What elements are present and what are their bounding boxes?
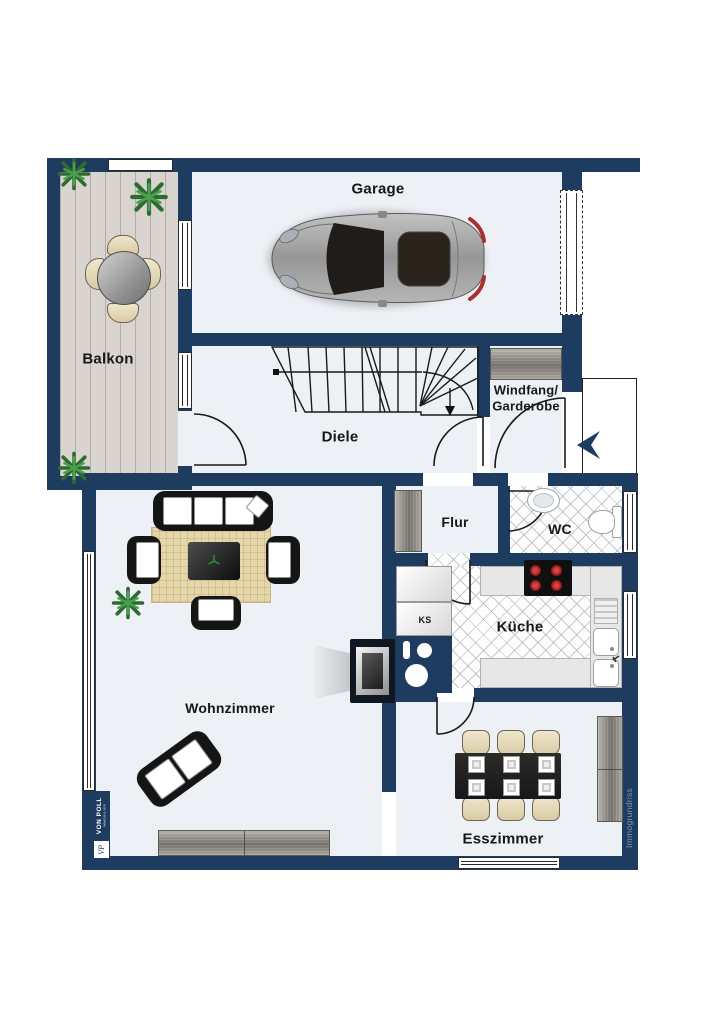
corridor-wardrobe <box>394 490 422 552</box>
kitchen-sink <box>593 659 619 687</box>
dining-door-arc <box>437 697 474 734</box>
watermark-text: Immogrundriss <box>624 796 634 848</box>
wc-sink <box>527 488 560 513</box>
sofa-3seat <box>153 491 273 531</box>
room-label-flur: Flur <box>441 514 468 530</box>
room-label-wc: WC <box>548 521 572 537</box>
room-label-garage: Garage <box>352 181 405 198</box>
room-label-windfang-2: Garderobe <box>492 399 560 414</box>
vestibule-door-arc <box>434 417 483 466</box>
livingroom-sideboard <box>158 830 330 856</box>
room-label-diele: Diele <box>322 429 359 446</box>
coffee-table <box>188 542 240 580</box>
room-label-kueche: Küche <box>497 619 544 636</box>
vonpoll-logo: VON POLL IMMOBILIEN VP <box>93 791 110 859</box>
room-label-windfang-1: Windfang/ <box>494 383 559 398</box>
room-label-wohnzimmer: Wohnzimmer <box>185 700 275 716</box>
armchair <box>191 596 241 630</box>
fridge-label: KS <box>419 615 432 625</box>
armchair <box>127 536 161 584</box>
room-label-balkon: Balkon <box>82 351 133 368</box>
vestibule-wardrobe <box>490 348 562 380</box>
armchair <box>266 536 300 584</box>
kitchen-cabinet <box>396 566 452 602</box>
vonpoll-sub: IMMOBILIEN <box>103 797 106 834</box>
diningroom-sideboard <box>597 716 623 822</box>
fireplace <box>350 639 395 703</box>
kitchen-counter-bottom <box>480 658 592 688</box>
drainboard <box>594 598 618 624</box>
entrance-arrow-icon <box>577 431 600 459</box>
toilet-icon <box>588 510 615 534</box>
faucet-icon <box>610 650 620 658</box>
fridge-cabinet: KS <box>396 602 452 636</box>
floorplan-canvas: KS <box>0 0 713 1009</box>
fireplace-glow <box>314 645 350 699</box>
balcony-door-arc <box>194 414 246 465</box>
appliance-panel <box>396 636 452 693</box>
stove-icon <box>524 560 572 596</box>
dining-table <box>455 753 561 799</box>
room-label-esszimmer: Esszimmer <box>462 831 543 848</box>
vonpoll-monogram: VP <box>97 845 106 855</box>
